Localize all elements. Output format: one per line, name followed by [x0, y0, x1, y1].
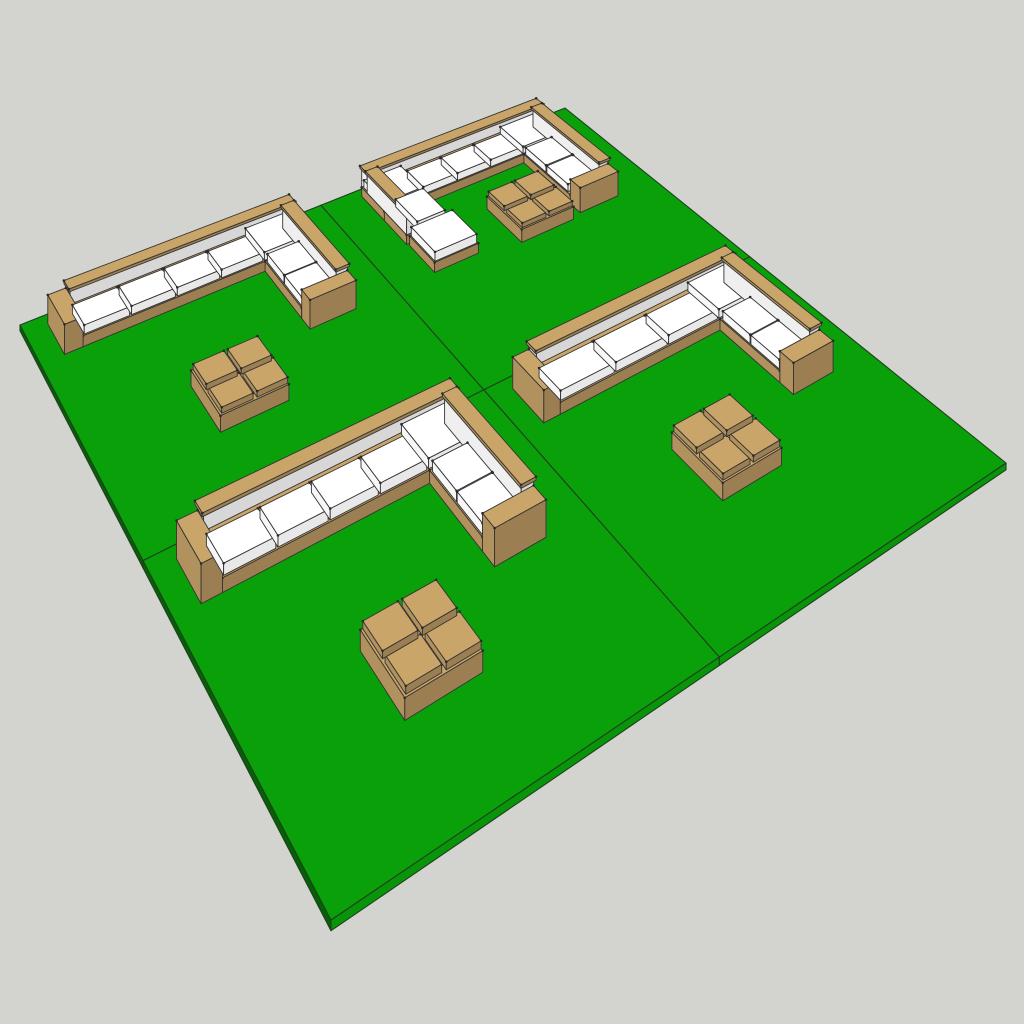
edge-endpoint-dot [754, 417, 757, 420]
edge-endpoint-dot [475, 233, 478, 236]
edge-endpoint-dot [196, 509, 199, 512]
edge-endpoint-dot [359, 629, 362, 632]
edge-endpoint-dot [524, 146, 527, 149]
edge-endpoint-dot [288, 383, 291, 386]
edge-endpoint-dot [617, 170, 620, 173]
edge-endpoint-dot [410, 226, 413, 229]
edge-endpoint-dot [537, 170, 540, 173]
edge-endpoint-dot [399, 165, 402, 168]
edge-endpoint-dot [256, 335, 259, 338]
edge-endpoint-dot [535, 97, 538, 100]
edge-endpoint-dot [486, 195, 489, 198]
edge-endpoint-dot [264, 260, 267, 263]
edge-endpoint-dot [615, 361, 618, 364]
edge-endpoint-dot [256, 390, 259, 393]
edge-endpoint-dot [572, 154, 575, 157]
edge-endpoint-dot [416, 220, 419, 223]
edge-endpoint-dot [397, 600, 400, 603]
edge-endpoint-dot [779, 350, 782, 353]
edge-endpoint-dot [503, 205, 506, 208]
edge-endpoint-dot [300, 288, 303, 291]
edge-endpoint-dot [489, 158, 492, 161]
edge-endpoint-dot [514, 179, 517, 182]
edge-endpoint-dot [455, 607, 458, 610]
edge-endpoint-dot [175, 519, 178, 522]
edge-endpoint-dot [528, 348, 531, 351]
edge-endpoint-dot [569, 178, 572, 181]
edge-endpoint-dot [259, 506, 262, 509]
edge-endpoint-dot [673, 424, 676, 427]
edge-endpoint-dot [532, 484, 535, 487]
edge-endpoint-dot [220, 406, 223, 409]
edge-endpoint-dot [593, 339, 596, 342]
edge-endpoint-dot [482, 649, 485, 652]
edge-endpoint-dot [792, 362, 795, 365]
edge-endpoint-dot [466, 441, 469, 444]
edge-endpoint-dot [725, 429, 728, 432]
edge-endpoint-dot [404, 697, 407, 700]
edge-endpoint-dot [363, 179, 366, 182]
render-viewport [0, 0, 1024, 1024]
edge-endpoint-dot [752, 454, 755, 457]
edge-endpoint-dot [609, 157, 612, 160]
edge-endpoint-dot [598, 161, 601, 164]
edge-endpoint-dot [359, 165, 362, 168]
edge-endpoint-dot [456, 172, 459, 175]
edge-endpoint-dot [522, 145, 525, 148]
edge-endpoint-dot [263, 251, 266, 254]
edge-endpoint-dot [749, 296, 752, 299]
edge-endpoint-dot [433, 261, 436, 264]
edge-endpoint-dot [721, 256, 724, 259]
edge-endpoint-dot [400, 423, 403, 426]
edge-endpoint-dot [63, 279, 66, 282]
edge-endpoint-dot [687, 281, 690, 284]
edge-endpoint-dot [832, 340, 835, 343]
edge-endpoint-dot [244, 227, 247, 230]
edge-endpoint-dot [194, 499, 197, 502]
edge-endpoint-dot [525, 340, 528, 343]
edge-endpoint-dot [480, 640, 483, 643]
edge-endpoint-dot [750, 334, 753, 337]
edge-endpoint-dot [535, 350, 538, 353]
edge-endpoint-dot [818, 328, 821, 331]
edge-endpoint-dot [511, 356, 514, 359]
edge-endpoint-dot [315, 261, 318, 264]
edge-endpoint-dot [421, 626, 424, 629]
edge-endpoint-dot [571, 200, 574, 203]
edge-endpoint-dot [277, 534, 280, 537]
edge-endpoint-dot [521, 228, 524, 231]
edge-endpoint-dot [223, 349, 226, 352]
edge-endpoint-dot [777, 319, 780, 322]
edge-endpoint-dot [266, 253, 269, 256]
edge-endpoint-dot [346, 269, 349, 272]
edge-endpoint-dot [163, 267, 166, 270]
edge-endpoint-dot [381, 650, 384, 653]
edge-endpoint-dot [401, 598, 404, 601]
edge-endpoint-dot [820, 321, 823, 324]
edge-endpoint-dot [335, 268, 338, 271]
edge-endpoint-dot [405, 685, 408, 688]
edge-endpoint-dot [364, 170, 367, 173]
edge-endpoint-dot [205, 533, 208, 536]
edge-endpoint-dot [458, 610, 461, 613]
edge-endpoint-dot [699, 409, 702, 412]
edge-endpoint-dot [728, 393, 731, 396]
edge-endpoint-dot [222, 562, 225, 565]
edge-endpoint-dot [780, 447, 783, 450]
edge-endpoint-dot [449, 377, 452, 380]
edge-endpoint-dot [487, 190, 490, 193]
edge-endpoint-dot [555, 186, 558, 189]
edge-endpoint-dot [530, 106, 533, 109]
edge-endpoint-dot [65, 287, 68, 290]
edge-endpoint-dot [546, 165, 549, 168]
edge-endpoint-dot [435, 579, 438, 582]
edge-endpoint-dot [47, 294, 50, 297]
edge-endpoint-dot [200, 562, 203, 565]
edge-endpoint-dot [257, 507, 260, 510]
edge-endpoint-dot [71, 304, 74, 307]
edge-endpoint-dot [286, 376, 289, 379]
edge-endpoint-dot [520, 484, 523, 487]
edge-endpoint-dot [130, 305, 133, 308]
edge-endpoint-dot [545, 498, 548, 501]
edge-endpoint-dot [444, 209, 447, 212]
edge-endpoint-dot [427, 457, 430, 460]
edge-endpoint-dot [207, 250, 210, 253]
edge-endpoint-dot [63, 323, 66, 326]
edge-endpoint-dot [310, 480, 313, 483]
edge-endpoint-dot [270, 354, 273, 357]
edge-endpoint-dot [355, 279, 358, 282]
edge-endpoint-dot [521, 222, 524, 225]
edge-endpoint-dot [428, 469, 431, 472]
edge-endpoint-dot [83, 324, 86, 327]
edge-endpoint-dot [751, 414, 754, 417]
edge-endpoint-dot [360, 186, 363, 189]
edge-endpoint-dot [567, 183, 570, 186]
edge-endpoint-dot [441, 392, 444, 395]
edge-endpoint-dot [718, 308, 721, 311]
edge-endpoint-dot [176, 286, 179, 289]
edge-endpoint-dot [499, 126, 502, 129]
edge-endpoint-dot [550, 136, 553, 139]
edge-endpoint-dot [431, 459, 434, 462]
edge-endpoint-dot [118, 285, 121, 288]
edge-endpoint-dot [456, 385, 459, 388]
edge-endpoint-dot [220, 268, 223, 271]
edge-endpoint-dot [362, 620, 365, 623]
edge-endpoint-dot [538, 367, 541, 370]
edge-endpoint-dot [511, 181, 514, 184]
edge-endpoint-dot [671, 431, 674, 434]
edge-endpoint-dot [722, 310, 725, 313]
edge-endpoint-dot [473, 143, 476, 146]
edge-endpoint-dot [535, 475, 538, 478]
scene-3d-render [0, 0, 1024, 1024]
edge-endpoint-dot [240, 367, 243, 370]
edge-endpoint-dot [219, 414, 222, 417]
edge-endpoint-dot [523, 153, 526, 156]
edge-endpoint-dot [703, 408, 706, 411]
edge-endpoint-dot [406, 170, 409, 173]
edge-endpoint-dot [190, 369, 193, 372]
edge-endpoint-dot [288, 193, 291, 196]
edge-endpoint-dot [272, 356, 275, 359]
edge-endpoint-dot [309, 299, 312, 302]
edge-endpoint-dot [722, 472, 725, 475]
edge-endpoint-dot [732, 251, 735, 254]
edge-endpoint-dot [541, 102, 544, 105]
edge-endpoint-dot [552, 184, 555, 187]
edge-endpoint-dot [422, 187, 425, 190]
edge-endpoint-dot [408, 235, 411, 238]
edge-endpoint-dot [192, 363, 195, 366]
edge-endpoint-dot [724, 244, 727, 247]
edge-endpoint-dot [456, 490, 459, 493]
edge-endpoint-dot [205, 383, 208, 386]
edge-endpoint-dot [293, 199, 296, 202]
edge-endpoint-dot [283, 274, 286, 277]
edge-endpoint-dot [778, 439, 781, 442]
edge-endpoint-dot [695, 446, 698, 449]
edge-endpoint-dot [543, 389, 546, 392]
edge-endpoint-dot [645, 313, 648, 316]
edge-endpoint-dot [360, 456, 363, 459]
edge-endpoint-dot [394, 198, 397, 201]
edge-endpoint-dot [491, 471, 494, 474]
edge-endpoint-dot [481, 512, 484, 515]
edge-endpoint-dot [559, 389, 562, 392]
edge-endpoint-dot [477, 242, 480, 245]
edge-endpoint-dot [607, 162, 610, 165]
edge-endpoint-dot [529, 194, 532, 197]
edge-endpoint-dot [379, 482, 382, 485]
edge-endpoint-dot [348, 262, 351, 265]
edge-endpoint-dot [493, 527, 496, 530]
edge-endpoint-dot [280, 204, 283, 207]
edge-endpoint-dot [451, 209, 454, 212]
edge-endpoint-dot [226, 348, 229, 351]
edge-endpoint-dot [579, 187, 582, 190]
edge-endpoint-dot [722, 482, 725, 485]
edge-endpoint-dot [440, 156, 443, 159]
edge-endpoint-dot [445, 660, 448, 663]
edge-endpoint-dot [68, 288, 71, 291]
edge-endpoint-dot [719, 318, 722, 321]
edge-endpoint-dot [809, 328, 812, 331]
edge-endpoint-dot [376, 165, 379, 168]
edge-endpoint-dot [201, 512, 204, 515]
edge-endpoint-dot [297, 240, 300, 243]
edge-endpoint-dot [329, 507, 332, 510]
edge-endpoint-dot [548, 210, 551, 213]
edge-endpoint-dot [434, 251, 437, 254]
edge-endpoint-dot [667, 334, 670, 337]
